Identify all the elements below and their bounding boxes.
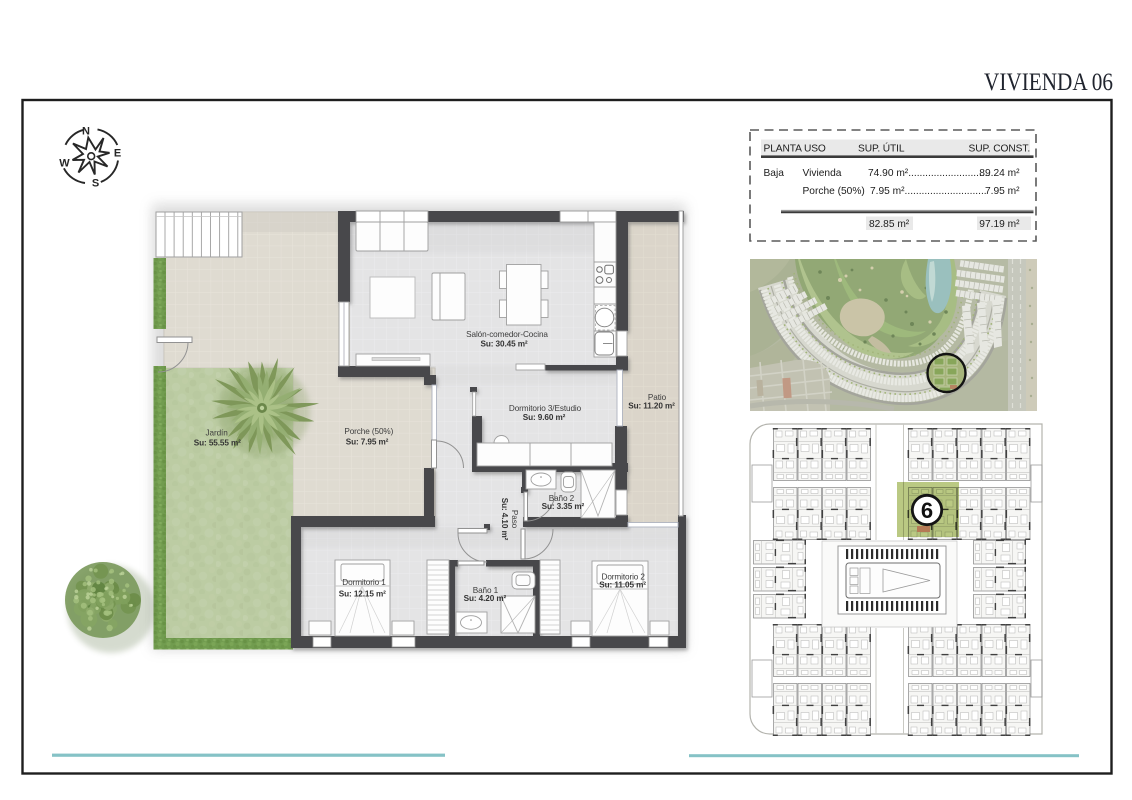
svg-text:PLANTA USO: PLANTA USO [764,144,826,155]
svg-text:Baja: Baja [764,168,785,179]
svg-text:SUP. ÚTIL: SUP. ÚTIL [858,142,905,155]
svg-text:Paso: Paso [510,510,519,529]
svg-text:Su: 11.05 m²: Su: 11.05 m² [599,581,646,590]
svg-text:Su: 4.10 m²: Su: 4.10 m² [500,498,509,541]
svg-text:W: W [59,158,70,170]
svg-text:S: S [92,178,99,190]
svg-text:E: E [114,148,121,160]
svg-text:Su: 9.60 m²: Su: 9.60 m² [523,413,566,422]
svg-text:Su: 7.95 m²: Su: 7.95 m² [346,438,389,447]
svg-text:Su: 11.20 m²: Su: 11.20 m² [628,402,675,411]
svg-text:7.95 m²: 7.95 m² [985,186,1020,197]
svg-text:Su: 3.35 m²: Su: 3.35 m² [542,502,585,511]
svg-text:89.24 m²: 89.24 m² [979,168,1020,179]
svg-text:82.85 m²: 82.85 m² [869,219,910,230]
svg-text:Porche (50%): Porche (50%) [344,427,393,436]
svg-text:VIVIENDA 06: VIVIENDA 06 [984,69,1113,96]
svg-text:Salón-comedor-Cocina: Salón-comedor-Cocina [466,330,548,339]
svg-text:74.90 m²......................: 74.90 m²............................. [868,168,990,179]
svg-text:N: N [82,126,90,138]
svg-text:Su: 30.45 m²: Su: 30.45 m² [480,340,527,349]
svg-text:Su: 55.55 m²: Su: 55.55 m² [194,439,241,448]
svg-text:Vivienda: Vivienda [803,168,842,179]
svg-text:7.95 m².......................: 7.95 m²............................. [870,186,987,197]
svg-text:Dormitorio 3/Estudio: Dormitorio 3/Estudio [509,404,582,413]
svg-text:SUP. CONST.: SUP. CONST. [969,144,1031,155]
svg-text:Su: 4.20 m²: Su: 4.20 m² [464,594,507,603]
svg-text:Dormitorio 1: Dormitorio 1 [342,578,386,587]
svg-text:Porche (50%): Porche (50%) [803,186,865,197]
svg-text:Su: 12.15 m²: Su: 12.15 m² [339,590,386,599]
svg-text:Jardín: Jardín [206,429,229,438]
svg-text:6: 6 [921,498,933,523]
svg-text:97.19 m²: 97.19 m² [979,219,1020,230]
